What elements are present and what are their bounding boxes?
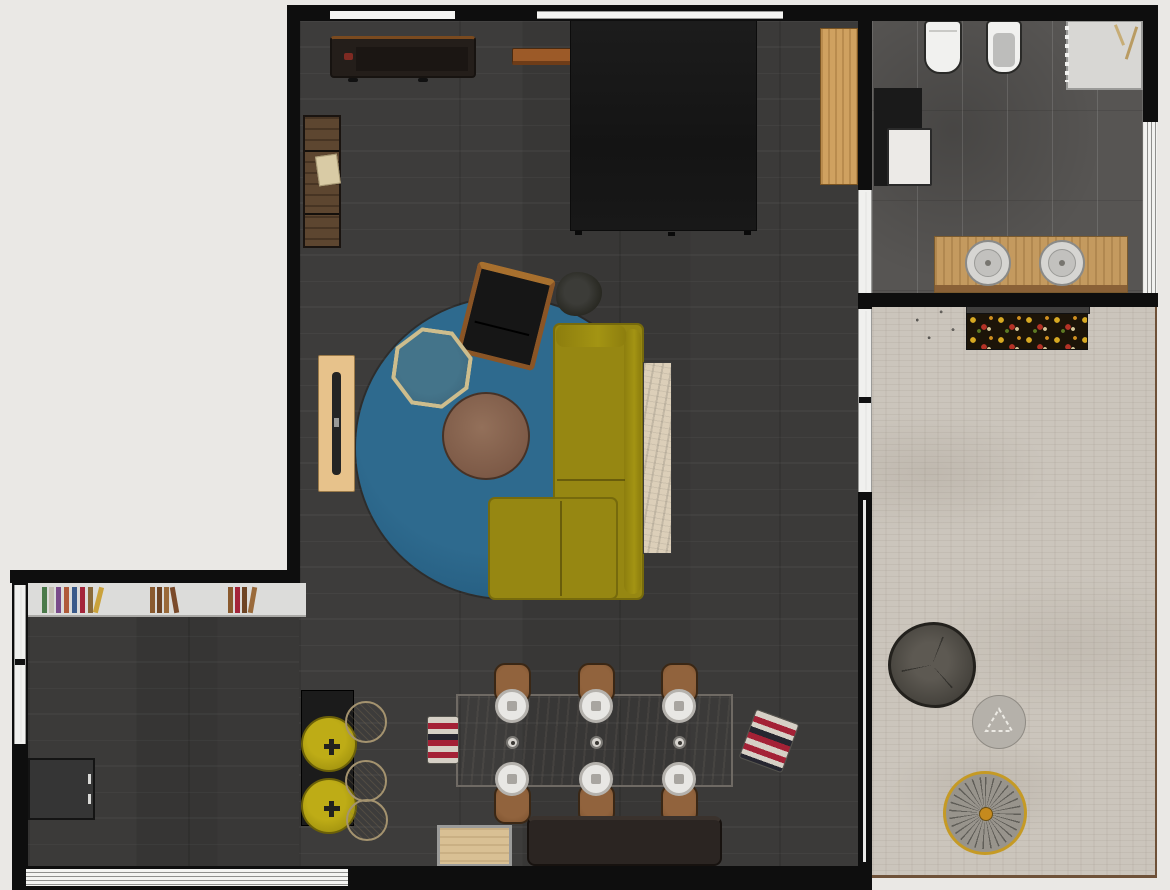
book [42,587,47,613]
media-console-foot [418,78,428,82]
partition-wall-upper [858,5,872,190]
book [157,587,162,613]
media-console[interactable] [330,36,476,78]
book [164,587,169,613]
bed-foot [668,232,675,236]
book [242,587,247,613]
toilet[interactable] [924,20,962,74]
shelf-item [315,154,341,187]
wood-bench[interactable] [437,825,512,867]
place-setting [662,762,696,796]
book [88,587,93,613]
bidet-bowl [993,33,1015,67]
floor-plan-canvas [0,0,1170,890]
bathroom-sink[interactable] [965,240,1011,286]
dark-bed[interactable] [570,20,757,231]
place-setting [495,689,529,723]
patterned-daybed[interactable] [966,313,1088,350]
wall-shelf[interactable] [512,48,578,65]
console-interior [356,47,468,71]
armchair-seat-line [474,321,529,336]
place-setting [662,689,696,723]
place-setting [579,762,613,796]
book [248,587,257,613]
bidet[interactable] [986,20,1022,74]
shower-decor [1125,26,1138,59]
book [150,587,155,613]
place-setting [495,762,529,796]
rattan-stool[interactable] [345,760,387,802]
shelf-bar [305,213,339,215]
wood-sideboard[interactable] [318,355,355,492]
dark-pouf[interactable] [888,622,976,708]
triangle-mark-icon [972,695,1026,749]
cistern-line [929,30,957,32]
wall-west-living [287,5,300,583]
bathroom-sliding-door[interactable] [858,190,872,296]
sideboard-knob [334,418,339,427]
sofa-console-table[interactable] [643,362,672,554]
book [56,587,61,613]
balcony-door-west[interactable] [14,585,26,744]
partition-glass-strip [863,500,866,862]
sofa-seat-line [557,479,625,481]
bed-foot [744,231,751,235]
table-candle [506,736,519,749]
book [64,587,69,613]
media-console-foot [348,78,358,82]
table-candle [673,736,686,749]
counter-handle [88,794,91,804]
sofa-chaise-line [560,501,562,596]
place-setting [579,689,613,723]
book [80,587,85,613]
sofa-chaise[interactable] [488,497,618,600]
shelf-bar [305,150,339,152]
window-north-right [537,11,783,19]
window-north-left [330,11,455,19]
rattan-stool[interactable] [346,799,388,841]
dark-bench[interactable] [527,816,722,866]
wall-bookshelf[interactable] [28,583,306,617]
rattan-stool[interactable] [345,701,387,743]
window-south [26,869,348,886]
wheel-hub [979,807,993,821]
book [228,587,233,613]
wheel-decor[interactable] [943,771,1027,855]
left-wing-floor [28,583,299,866]
sofa-armrest [556,325,626,347]
shower-decor [1114,24,1125,46]
gray-pouf[interactable] [972,695,1026,749]
coffee-table[interactable] [442,392,530,480]
ladder-shelf[interactable] [303,115,341,248]
wall-east-upper [1143,5,1158,122]
tall-cabinet[interactable] [820,28,858,185]
book [72,587,77,613]
bedroom-sliding-door[interactable] [858,309,872,492]
book [49,587,54,613]
shower[interactable] [1066,20,1143,90]
bed-foot [575,231,582,235]
counter-handle [88,774,91,784]
washer-door [887,128,932,186]
bathroom-sink[interactable] [1039,240,1085,286]
window-east [1144,122,1157,293]
striped-pouf-left[interactable] [427,716,459,764]
tv-red-light [344,53,353,60]
book [93,587,104,613]
wall-bathroom-south [858,293,1158,307]
wall-wing-north [10,570,300,583]
vanity-front-edge [935,285,1127,292]
sofa-backrest [624,329,641,594]
book [170,587,179,613]
sink-vanity[interactable] [934,236,1128,293]
table-candle [590,736,603,749]
book [235,587,240,613]
kitchen-counter[interactable] [28,758,95,820]
